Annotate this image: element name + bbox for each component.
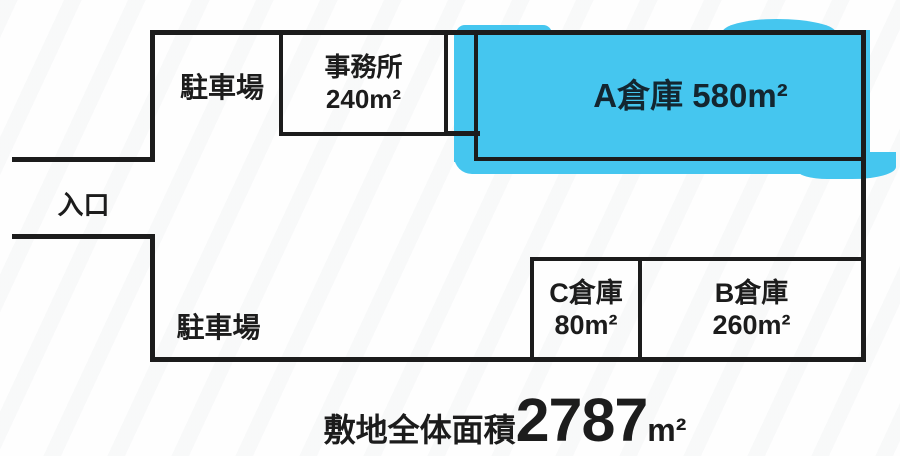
warehouse-c-name: C倉庫: [549, 278, 623, 309]
room-warehouse-a: A倉庫 580m²: [474, 31, 865, 161]
total-area-unit: m²: [647, 412, 686, 448]
warehouse-b-area: 260m²: [712, 310, 790, 341]
room-office: 事務所 240m²: [279, 31, 448, 136]
site-plan-canvas: 事務所 240m² A倉庫 580m² C倉庫 80m² B倉庫 260m² 駐…: [0, 0, 900, 456]
entrance-corridor-bottom-line: [12, 234, 155, 239]
total-area-value: 2787: [516, 386, 648, 454]
office-area: 240m²: [326, 84, 401, 116]
warehouse-b-name: B倉庫: [715, 278, 789, 309]
room-warehouse-c: C倉庫 80m²: [530, 257, 642, 362]
warehouse-c-area: 80m²: [554, 310, 617, 341]
parking-north-label: 駐車場: [152, 66, 292, 106]
room-warehouse-b: B倉庫 260m²: [638, 257, 865, 362]
total-area-caption: 敷地全体面積2787m²: [324, 390, 687, 451]
total-area-label: 敷地全体面積: [324, 412, 516, 448]
entrance-corridor-top-line: [12, 157, 155, 162]
entrance-label: 入口: [12, 185, 155, 222]
warehouse-a-label: A倉庫 580m²: [593, 76, 787, 116]
parking-south-label: 駐車場: [152, 306, 285, 346]
office-name: 事務所: [324, 52, 402, 84]
